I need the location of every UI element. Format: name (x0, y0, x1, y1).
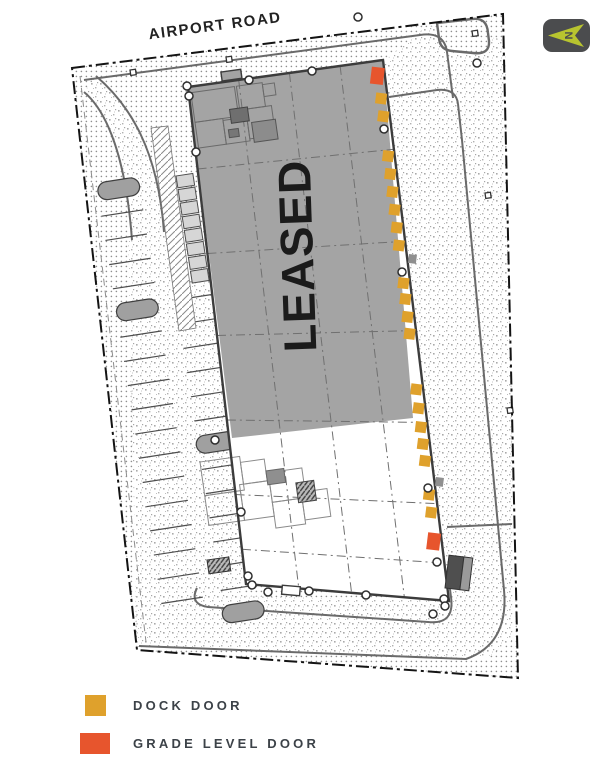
legend-item-grade-level-door: GRADE LEVEL DOOR (80, 732, 319, 754)
grade-level-door-label: GRADE LEVEL DOOR (133, 736, 319, 751)
roof-notch (221, 69, 242, 81)
site-plan: AIRPORT ROAD LEASED N DOCK DOOR GRADE LE… (0, 0, 608, 773)
stair-landing (435, 477, 444, 487)
north-arrow-glyph: N (543, 19, 590, 52)
stair-landing (408, 254, 417, 264)
truck-ramp (445, 555, 473, 591)
site-plan-drawing (0, 0, 608, 773)
utility-pad (207, 557, 231, 574)
grade-level-door-swatch (80, 733, 110, 754)
legend-item-dock-door: DOCK DOOR (85, 694, 243, 716)
north-arrow-icon: N (543, 19, 590, 52)
north-letter: N (562, 32, 574, 40)
vestibule (282, 585, 301, 596)
leased-area-label: LEASED (267, 159, 328, 353)
dock-door-label: DOCK DOOR (133, 698, 243, 713)
dock-door-swatch (85, 695, 106, 716)
